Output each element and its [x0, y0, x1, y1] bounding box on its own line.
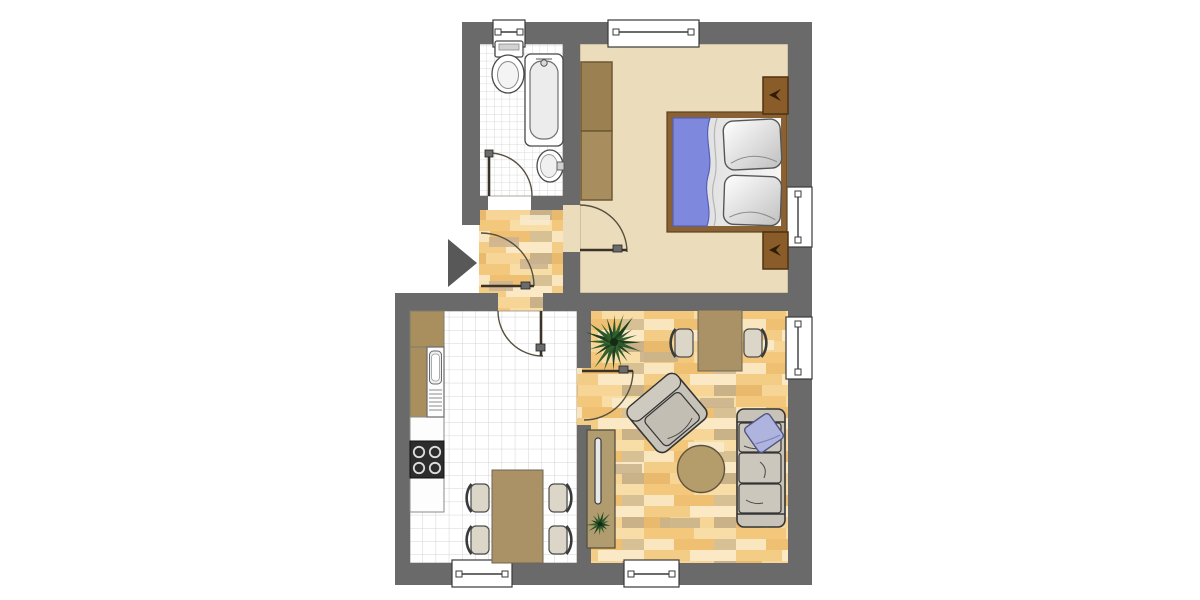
window-living-right	[786, 317, 812, 379]
floorplan-canvas	[0, 0, 1200, 600]
wall-left-upper	[462, 44, 480, 225]
living-door-threshold	[577, 368, 591, 425]
toilet	[492, 41, 524, 93]
wall-mid-band-right	[543, 293, 788, 311]
wall-bathroom-bedroom	[563, 44, 580, 205]
sideboard	[587, 430, 615, 548]
bathtub	[525, 54, 563, 146]
kitchen-sink	[427, 347, 444, 417]
round-coffee-table	[678, 446, 725, 493]
wall-right	[788, 22, 812, 585]
nightstand-top	[763, 77, 788, 114]
wall-mid-band-left	[395, 293, 498, 311]
sofa	[737, 409, 785, 527]
wall-bathroom-bottom-left	[479, 196, 488, 210]
wall-bathroom-bottom-right	[531, 196, 563, 210]
double-bed	[667, 112, 787, 232]
bed-pillow-bottom	[723, 175, 782, 226]
window-living-bottom	[624, 560, 679, 587]
kitchen-table	[492, 470, 543, 563]
wall-left-lower	[395, 311, 410, 585]
wall-hall-bedroom	[563, 252, 580, 293]
window-kitchen-bottom	[452, 560, 512, 587]
hallway-passage-floor	[498, 293, 543, 311]
bathroom-sink	[537, 150, 564, 182]
bedroom-door-threshold	[563, 205, 580, 252]
window-bedroom-right	[786, 187, 812, 247]
bed-pillow-top	[723, 119, 782, 171]
living-table	[698, 310, 742, 371]
stove	[410, 441, 444, 478]
window-bedroom-top	[608, 20, 699, 47]
nightstand-bottom	[763, 232, 788, 269]
bed-blanket	[673, 118, 710, 226]
wall-kitchen-living-upper	[577, 311, 591, 368]
floor-plan	[0, 0, 1200, 600]
wardrobe	[581, 62, 612, 200]
